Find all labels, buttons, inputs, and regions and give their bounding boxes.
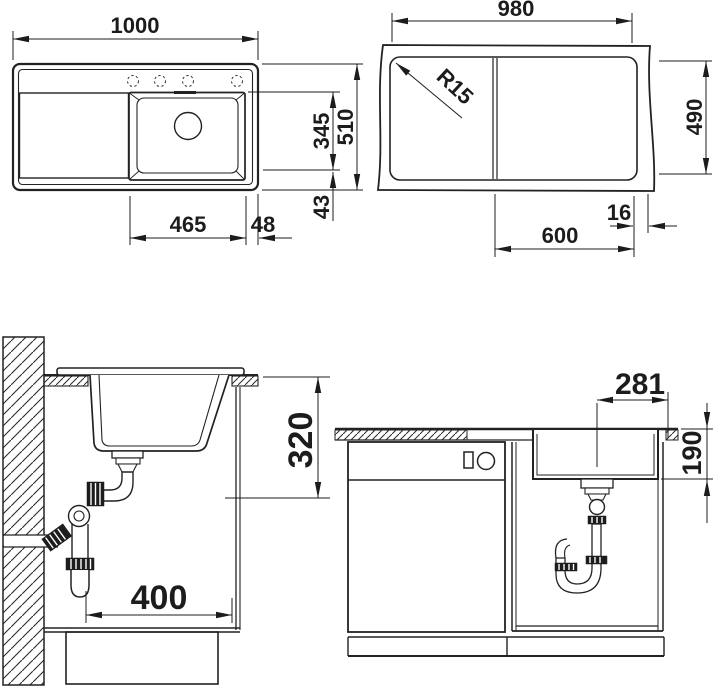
- trap-inlet-curl: [565, 545, 570, 558]
- dim-bowl-width: 465: [130, 194, 258, 245]
- sink-rim-inner-edge: [19, 70, 253, 185]
- ball-joint: [590, 500, 605, 515]
- bowl-outer: [129, 93, 245, 181]
- dim-label-trap-clearance: 400: [131, 579, 188, 617]
- dim-label-bowl-to-front: 43: [309, 195, 334, 219]
- drainboard: [20, 93, 129, 178]
- dim-trap-clearance: 400: [86, 579, 232, 623]
- tap-hole-icon: [128, 76, 139, 87]
- side-section-view: 320 400: [3, 337, 330, 685]
- trap-flange-disc: [69, 506, 90, 527]
- dim-drain-offset: 281: [597, 368, 668, 438]
- dim-depth-below-counter: 320: [225, 377, 330, 498]
- dim-label-corner-radius: R15: [432, 64, 479, 110]
- dim-cutout-depth: 490: [659, 61, 712, 174]
- countertop-section-left: [44, 376, 88, 386]
- pipe-nut: [555, 563, 577, 571]
- pipe-nut: [87, 482, 104, 506]
- drain-flange: [112, 451, 143, 458]
- tap-hole-icon: [232, 76, 243, 87]
- bowl-inner: [137, 98, 238, 173]
- tap-hole-icon: [155, 76, 166, 87]
- drain-flange: [581, 479, 613, 488]
- dim-label-bowl-to-right: 48: [251, 212, 275, 237]
- dim-cutout-width: 980: [392, 0, 632, 43]
- dishwasher-knob-icon: [478, 453, 495, 470]
- siphon-assembly: [555, 479, 613, 593]
- dishwasher-cabinet: [348, 442, 505, 632]
- dim-bowl-to-right: 48: [251, 212, 292, 238]
- cutout-view: R15 980 490 600 16: [378, 0, 712, 257]
- sink-outer-edge: [13, 64, 258, 190]
- tap-holes: [128, 76, 243, 87]
- dim-label-overall-width: 1000: [111, 13, 160, 38]
- dim-label-bowl-height: 190: [677, 430, 707, 475]
- dim-label-cutout-width: 980: [498, 0, 535, 21]
- sink-technical-drawing: 1000 510 345 43 465 48: [0, 0, 713, 690]
- drain-trap-assembly: [42, 451, 143, 597]
- pipe-nut: [588, 516, 606, 524]
- plan-view: 1000 510 345 43 465 48: [13, 13, 363, 245]
- countertop-front-left: [335, 430, 467, 440]
- dim-edge-offset: 16: [607, 194, 677, 233]
- drain-tailpiece: [118, 464, 137, 472]
- pipe-nut: [66, 558, 94, 570]
- bowl-front-outer: [533, 430, 658, 479]
- sink-technical-drawing-page: 1000 510 345 43 465 48: [0, 0, 713, 690]
- dim-label-drain-offset: 281: [615, 368, 665, 401]
- dim-bowl-to-front: 43: [309, 172, 334, 221]
- dim-bowl-depth: 345: [248, 92, 340, 170]
- dim-label-bowl-depth: 345: [309, 113, 334, 150]
- dishwasher-display-icon: [464, 452, 473, 468]
- dim-label-depth-below-counter: 320: [282, 412, 320, 469]
- drain-flange: [116, 458, 140, 464]
- sink-rim-section: [57, 368, 244, 375]
- front-section-view: 281 190: [335, 368, 713, 656]
- bowl-corner-lines: [130, 94, 244, 180]
- drain-flange: [585, 488, 609, 494]
- dim-label-cutout-depth: 490: [682, 99, 707, 136]
- dim-label-bowl-cutout-width: 600: [542, 223, 579, 248]
- countertop-piece: [378, 45, 654, 191]
- wall-section: [3, 337, 44, 685]
- plinth-band: [348, 637, 664, 656]
- dim-overall-width: 1000: [13, 13, 258, 60]
- dim-bowl-height: 190: [661, 403, 713, 523]
- bowl-drain-hole: [175, 113, 202, 140]
- dim-corner-radius: R15: [396, 63, 478, 118]
- pipe-nut: [586, 556, 607, 564]
- countertop-section-right: [232, 376, 258, 386]
- cutout-opening: [390, 57, 637, 180]
- dim-label-edge-offset: 16: [607, 200, 631, 225]
- dim-label-bowl-width: 465: [170, 212, 207, 237]
- tap-hole-icon: [183, 76, 194, 87]
- dim-label-overall-depth: 510: [333, 109, 358, 146]
- cabinet-plinth: [66, 632, 218, 684]
